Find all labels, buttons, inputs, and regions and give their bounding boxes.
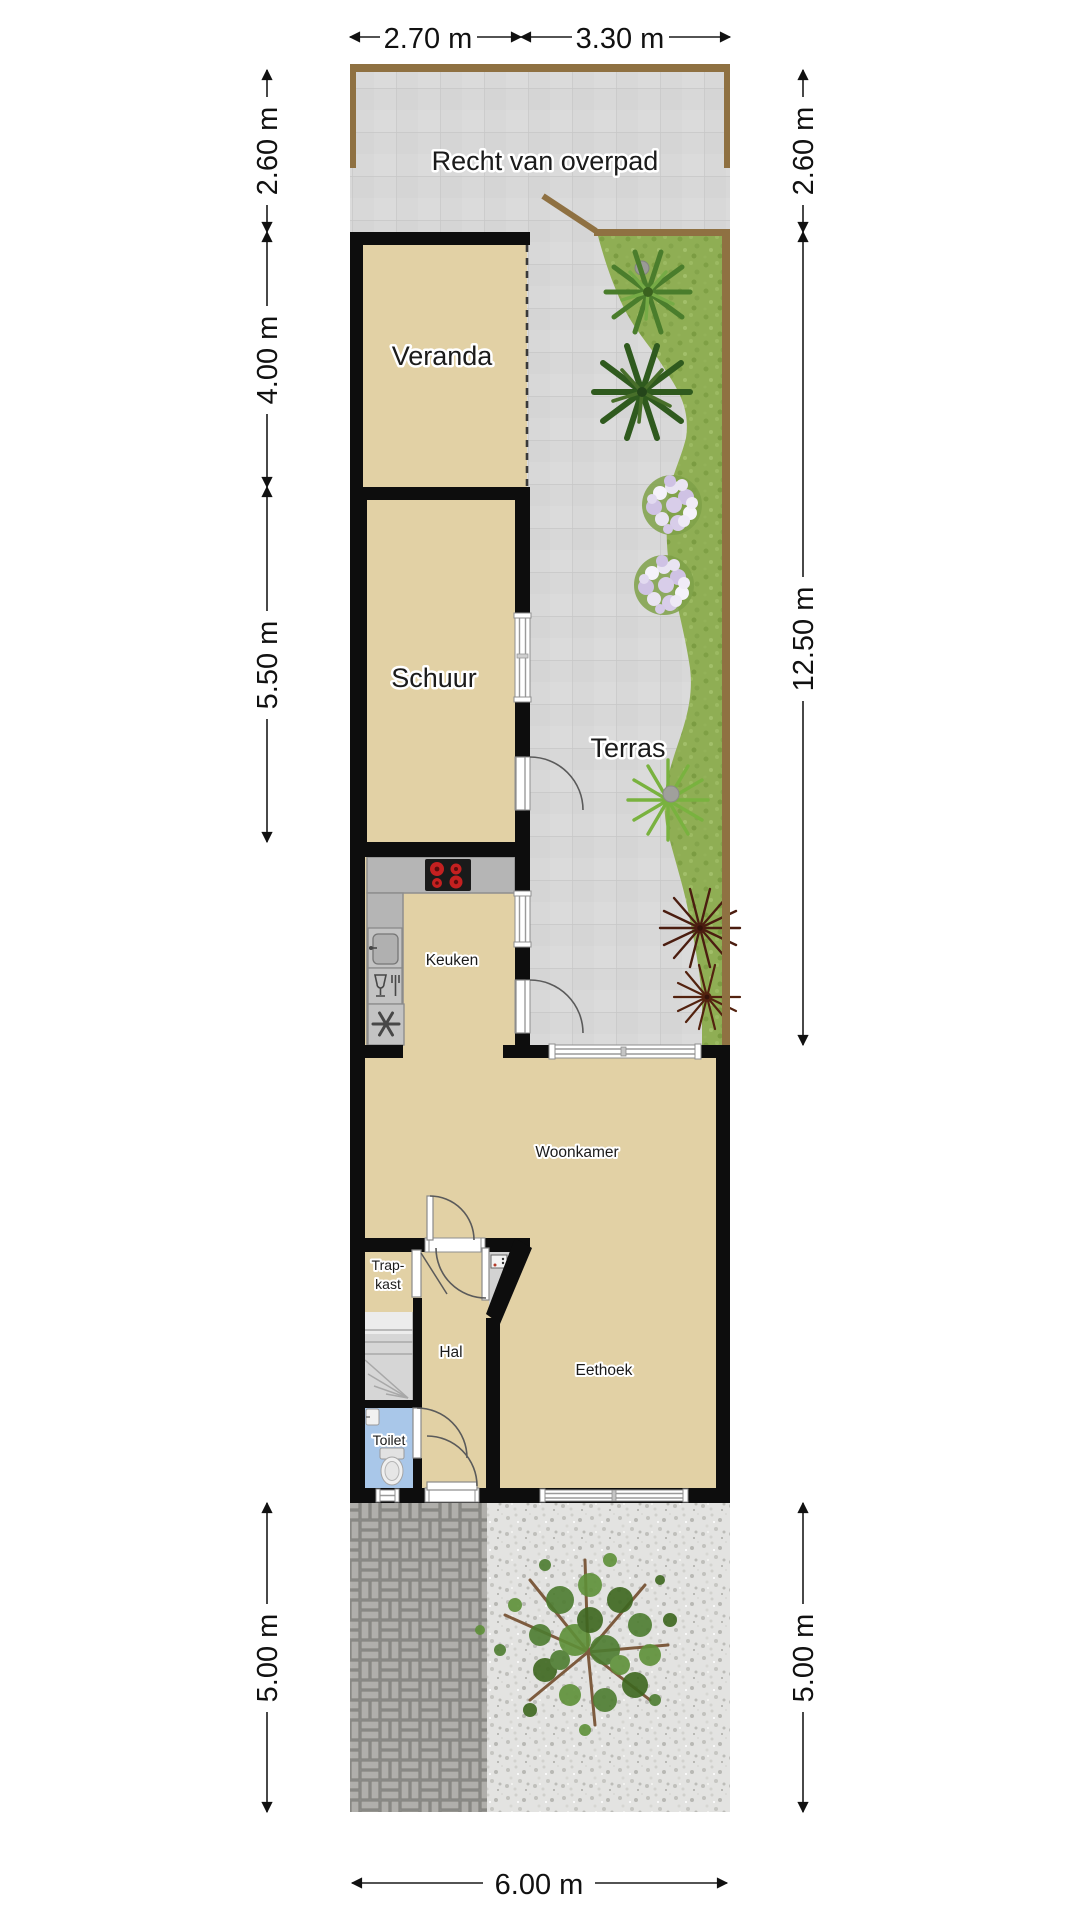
staircase-icon [365, 1312, 413, 1400]
dim-right-1250: 12.50 m [785, 232, 821, 1045]
svg-text:2.60 m: 2.60 m [252, 107, 284, 196]
kitchen-sink-icon [368, 928, 402, 968]
svg-text:4.00 m: 4.00 m [252, 316, 284, 405]
svg-text:5.00 m: 5.00 m [252, 1614, 284, 1703]
floorplan-page: Recht van overpad Veranda Schuur Terras … [0, 0, 1080, 1920]
eethoek-label: Eethoek [576, 1362, 633, 1379]
overpad-label: Recht van overpad [432, 146, 659, 176]
floorplan-drawing: Recht van overpad Veranda Schuur Terras … [0, 0, 1080, 1920]
trapkast-label: Trap- [372, 1257, 405, 1273]
dim-left-550: 5.50 m [249, 487, 285, 842]
keuken-label: Keuken [426, 952, 479, 969]
toilet-bowl-icon [380, 1448, 404, 1485]
dishwasher-icon [368, 968, 402, 1004]
svg-text:5.50 m: 5.50 m [252, 621, 284, 710]
veranda-label: Veranda [392, 341, 494, 371]
schuur-window [514, 613, 531, 702]
eethoek-window [540, 1489, 688, 1502]
svg-text:6.00 m: 6.00 m [495, 1869, 584, 1901]
toilet-window [376, 1489, 399, 1502]
toilet-label: Toilet [373, 1432, 406, 1448]
trapkast-label: kast [375, 1276, 401, 1292]
svg-text:2.60 m: 2.60 m [788, 107, 820, 196]
terras-label: Terras [590, 733, 665, 763]
dim-top-left: 2.70 m [350, 20, 521, 55]
woonkamer-sliding-window [549, 1044, 701, 1059]
hand-basin-icon [366, 1409, 379, 1425]
svg-text:12.50 m: 12.50 m [788, 587, 820, 692]
svg-text:3.30 m: 3.30 m [576, 23, 665, 55]
extractor-fan-icon [368, 1004, 404, 1045]
front-garden-paving [350, 1503, 487, 1812]
dim-right-500: 5.00 m [785, 1503, 821, 1812]
dim-left-260: 2.60 m [249, 70, 285, 232]
svg-text:5.00 m: 5.00 m [788, 1614, 820, 1703]
dim-top-right: 3.30 m [521, 20, 730, 55]
woonkamer-label: Woonkamer [535, 1144, 618, 1161]
dim-right-260: 2.60 m [785, 70, 821, 232]
schuur-label: Schuur [391, 663, 477, 693]
dim-bottom: 6.00 m [352, 1864, 727, 1901]
dim-left-500: 5.00 m [249, 1503, 285, 1812]
svg-text:2.70 m: 2.70 m [384, 23, 473, 55]
flower-bed-icon [642, 475, 702, 535]
stove-burners-icon [425, 859, 471, 891]
hal-label: Hal [439, 1344, 462, 1361]
dim-left-400: 4.00 m [249, 232, 285, 487]
flower-bed-icon [634, 555, 694, 615]
keuken-window [514, 891, 531, 947]
